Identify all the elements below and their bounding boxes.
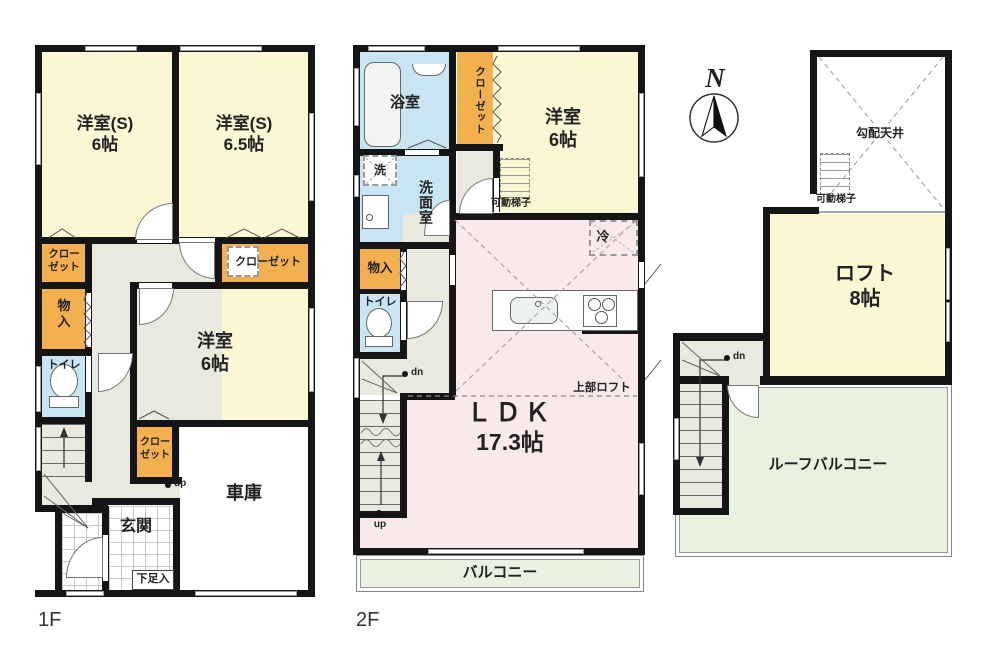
balcony-label: バルコニー	[450, 564, 550, 583]
washer-label: 洗	[370, 163, 390, 178]
diagram-lines-overlay	[0, 0, 1000, 652]
stairs-up-label-2f: up	[368, 519, 392, 532]
sloped-ceiling-label: 勾配天井	[843, 126, 917, 141]
closet-right-label: クローゼット	[230, 256, 306, 270]
stairs-dn-label-loft: dn	[733, 351, 753, 364]
ladder-label-loft: 可動梯子	[808, 194, 864, 207]
room-label-western6-2f: 洋室 6帖	[528, 106, 598, 151]
shoe-box-label: 下足入	[133, 573, 173, 587]
toilet-label-1f: トイレ	[44, 359, 84, 373]
room-label-western6-1f: 洋室 6帖	[175, 330, 255, 375]
floor-plan-canvas: 洋室(S) 6帖 洋室(S) 6.5帖 クロー ゼット クローゼット 物 入 ト…	[0, 0, 1000, 652]
stair-point	[724, 355, 730, 361]
room-label-western-s6: 洋室(S) 6帖	[55, 113, 155, 156]
roof-balcony-label: ルーフバルコニー	[748, 456, 908, 475]
stair-point	[402, 371, 408, 377]
room-label-western-s65: 洋室(S) 6.5帖	[194, 113, 294, 156]
closet-left-label: クロー ゼット	[44, 248, 84, 274]
compass-icon	[690, 94, 738, 142]
ldk-name-label: ＬＤＫ	[440, 398, 580, 429]
ladder-label-2f: 可動梯子	[484, 198, 538, 211]
ldk-size-label: 17.3帖	[440, 428, 580, 457]
upper-loft-label: 上部ロフト	[567, 381, 637, 395]
storage-label-1f: 物 入	[52, 298, 76, 331]
loft-room-label: ロフト 8帖	[815, 262, 915, 312]
compass-n-label: N	[698, 62, 732, 96]
washroom-label: 洗面室	[412, 166, 434, 238]
garage-label: 車庫	[213, 482, 275, 505]
closet-label-2f: クローゼット	[464, 58, 486, 142]
stair-point	[165, 482, 171, 488]
stairs-dn-label-2f: dn	[411, 367, 431, 380]
entrance-label: 玄関	[110, 517, 162, 537]
floor-label-1f: 1F	[38, 608, 74, 633]
closet-small-label: クロー ゼット	[138, 437, 172, 462]
storage-label-2f: 物入	[362, 261, 398, 277]
toilet-label-2f: トイレ	[362, 296, 398, 310]
stair-point	[376, 510, 382, 516]
floor-label-2f: 2F	[356, 608, 394, 633]
bathroom-label: 浴室	[378, 94, 432, 113]
stairs-up-label-1f: up	[174, 478, 196, 491]
fridge-label: 冷	[592, 229, 614, 245]
